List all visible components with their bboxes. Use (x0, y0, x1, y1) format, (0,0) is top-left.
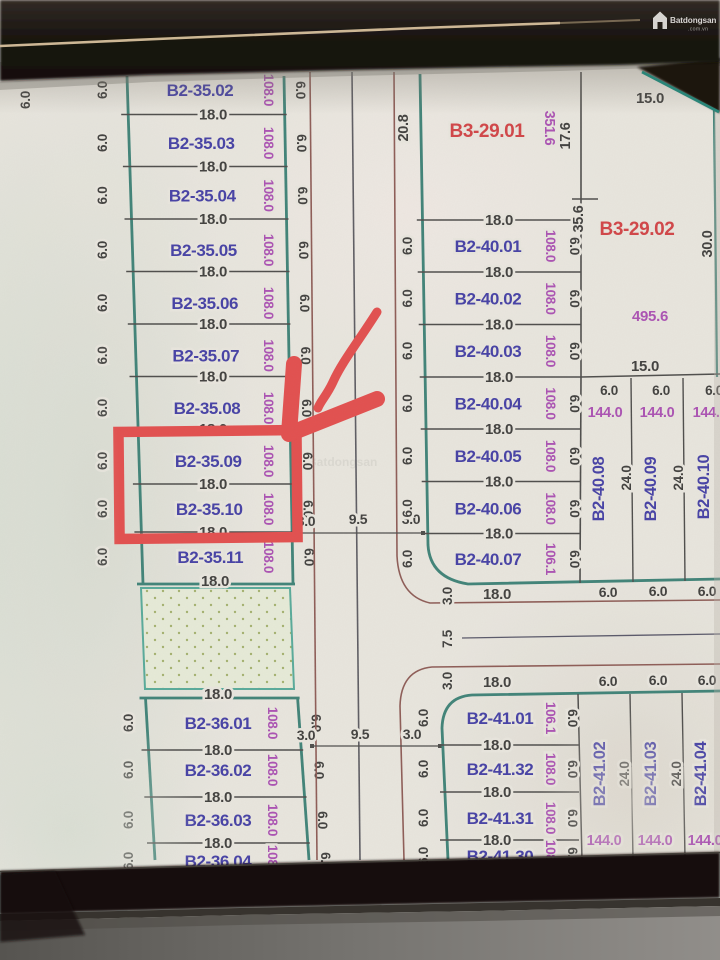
svg-text:Batdongsan: Batdongsan (670, 16, 716, 25)
svg-text:.com.vn: .com.vn (688, 27, 708, 33)
